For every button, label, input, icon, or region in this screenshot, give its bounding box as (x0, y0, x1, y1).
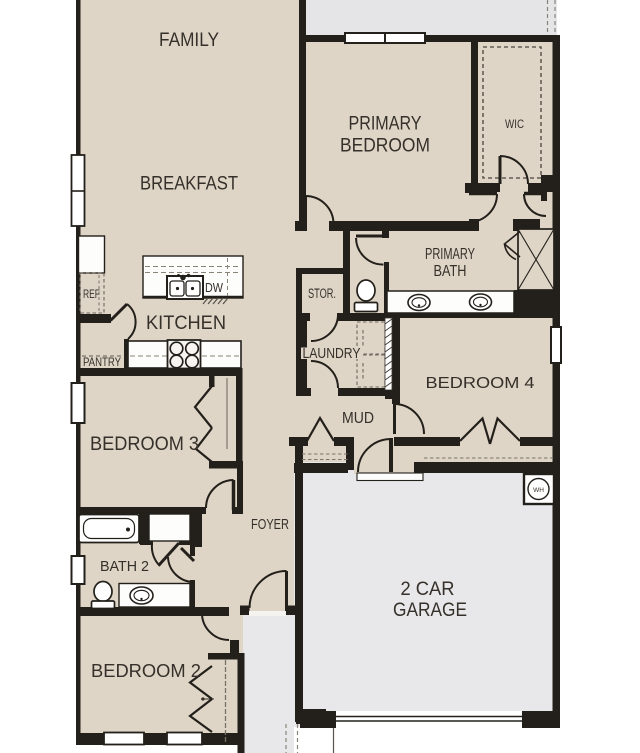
svg-text:PRIMARY: PRIMARY (349, 114, 422, 135)
svg-text:BEDROOM: BEDROOM (340, 136, 430, 157)
svg-text:FAMILY: FAMILY (159, 30, 219, 51)
svg-text:WIC: WIC (505, 119, 524, 131)
svg-text:BATH 2: BATH 2 (100, 558, 149, 575)
svg-text:STOR.: STOR. (308, 286, 336, 301)
svg-text:DW: DW (205, 281, 223, 295)
svg-text:MUD: MUD (342, 410, 374, 427)
svg-text:BREAKFAST: BREAKFAST (140, 174, 238, 195)
svg-text:BATH: BATH (434, 263, 467, 280)
svg-text:PRIMARY: PRIMARY (425, 246, 475, 263)
svg-text:GARAGE: GARAGE (393, 600, 467, 621)
svg-text:REF: REF (83, 287, 100, 301)
svg-text:BEDROOM 3: BEDROOM 3 (90, 434, 199, 455)
svg-text:LAUNDRY: LAUNDRY (303, 345, 361, 362)
svg-text:KITCHEN: KITCHEN (146, 313, 226, 334)
svg-text:PANTRY: PANTRY (83, 355, 121, 369)
svg-text:FOYER: FOYER (251, 516, 289, 533)
svg-text:BEDROOM 4: BEDROOM 4 (426, 375, 535, 392)
svg-text:WH: WH (533, 487, 544, 494)
svg-text:2 CAR: 2 CAR (401, 579, 455, 600)
svg-text:BEDROOM 2: BEDROOM 2 (91, 661, 201, 681)
